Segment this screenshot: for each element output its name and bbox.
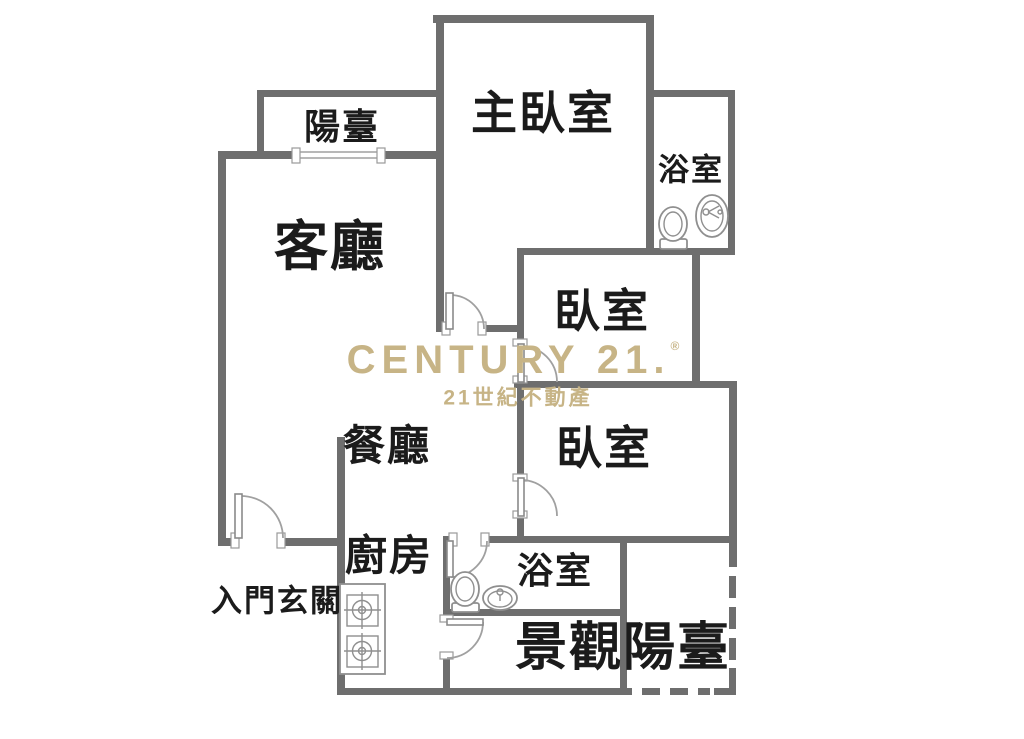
living-left-wall	[218, 151, 226, 546]
master-left-wall	[436, 15, 444, 332]
floorplan-canvas: 陽臺 主臥室 浴室 客廳 臥室 臥室 餐廳 廚房 入門玄關 浴室 景觀陽臺 CE…	[0, 0, 1024, 739]
master-right-wall	[646, 15, 654, 255]
bathroom-top-right-wall	[728, 90, 735, 255]
living-top-wall-right	[381, 151, 439, 159]
balcony-access-door	[440, 615, 483, 659]
balcony-window	[292, 148, 385, 163]
master-nook-bottom-wall	[482, 325, 521, 332]
bottom-wall-solid	[337, 688, 632, 695]
room-label-bedroom-2: 臥室	[556, 425, 652, 471]
window-pane	[298, 152, 379, 158]
stove-icon	[340, 584, 385, 674]
bedroom2-door	[513, 474, 557, 518]
room-label-view-balcony: 景觀陽臺	[515, 622, 731, 674]
entry-bottom-wall-right	[282, 538, 345, 546]
registered-mark-icon: ®	[671, 339, 680, 353]
master-top-wall	[433, 15, 654, 23]
century21-brand-text: CENTURY 21.	[347, 338, 671, 382]
mid-horizontal-wall	[517, 248, 735, 255]
century21-watermark: CENTURY 21.®	[347, 340, 680, 380]
century21-watermark-subtitle: 21世紀不動產	[443, 388, 592, 409]
living-top-wall-left	[218, 151, 296, 159]
sink-icon	[483, 586, 517, 610]
entry-door	[231, 494, 285, 548]
room-label-kitchen: 廚房	[345, 535, 433, 577]
window-cap-left	[292, 148, 300, 163]
bathroom-bottom-door	[447, 533, 489, 577]
master-bedroom-door	[442, 293, 486, 335]
balcony-top-wall	[257, 90, 439, 97]
toilet-icon	[659, 207, 687, 249]
room-label-entrance: 入門玄關	[211, 586, 343, 617]
balcony-left-wall	[257, 90, 264, 158]
room-label-living-room: 客廳	[274, 220, 386, 274]
room-label-balcony-top: 陽臺	[304, 109, 380, 145]
window-cap-right	[377, 148, 385, 163]
bathroom-top-top-wall	[646, 90, 735, 97]
toilet-icon	[451, 572, 479, 612]
bathroom-bottom-top-wall-right	[487, 536, 733, 543]
bedroom1-right-wall	[692, 248, 700, 388]
bedroom1-left-wall	[517, 248, 524, 344]
sink-icon	[696, 195, 728, 237]
room-label-bedroom-1: 臥室	[554, 288, 650, 334]
room-label-bathroom-top: 浴室	[658, 155, 724, 186]
room-label-dining-room: 餐廳	[343, 425, 431, 467]
room-label-bathroom-bottom: 浴室	[517, 553, 593, 589]
room-label-master-bedroom: 主臥室	[471, 90, 615, 136]
